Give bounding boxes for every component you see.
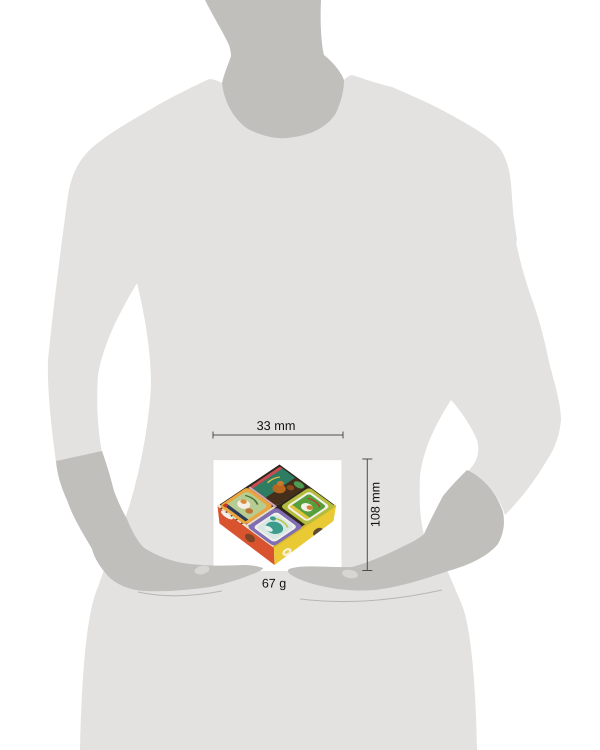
svg-text:33 mm: 33 mm	[257, 419, 296, 433]
svg-text:108 mm: 108 mm	[369, 482, 383, 527]
svg-text:67 g: 67 g	[262, 577, 286, 591]
